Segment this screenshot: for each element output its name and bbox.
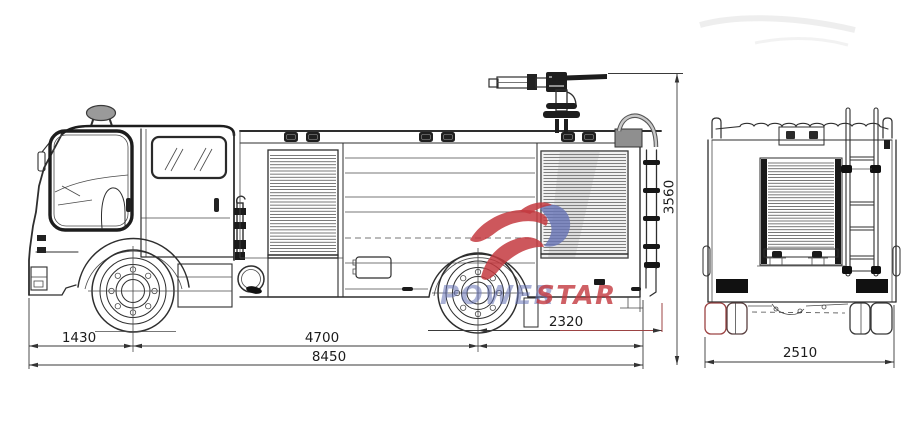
shutter-handle: [772, 251, 782, 258]
rear-axle: [748, 304, 848, 315]
pump-access-door: [353, 257, 391, 278]
beacon-light: [87, 106, 116, 127]
corner-handle-left: [703, 246, 710, 276]
mudflap-right: [856, 279, 888, 293]
watermark-text-star: STAR: [536, 281, 617, 311]
rear-body-outline: [703, 118, 900, 302]
crew-door-window: [152, 137, 226, 178]
headlight: [31, 267, 47, 290]
hose-reel: [238, 266, 264, 295]
cab-hinge: [37, 247, 46, 253]
door-handle: [214, 198, 219, 212]
watermark-logo: [470, 202, 570, 280]
rear-light-box: [779, 127, 824, 145]
dim-text-front-overhang: 1430: [62, 330, 96, 346]
rear-ladder: [841, 108, 881, 276]
door-handle: [126, 198, 131, 212]
water-monitor: [489, 72, 607, 133]
dim-text-overall-height: 3560: [662, 180, 678, 214]
rear-bumper: [620, 297, 643, 312]
rear-top-box: [615, 129, 642, 147]
rear-roller-shutter: [757, 158, 845, 266]
cab-hinge: [37, 235, 46, 241]
scan-smudge: [700, 18, 855, 45]
dim-text-wheelbase: 4700: [305, 330, 339, 346]
dim-text-rear-overhang: 2320: [549, 314, 583, 330]
corner-post-left: [712, 118, 721, 138]
dimension-front-overhang-wheelbase: 1430 4700: [29, 330, 643, 348]
dimension-overall-width: 2510: [705, 305, 894, 368]
shutter-handle: [812, 251, 822, 258]
grab-handle: [402, 287, 413, 291]
grab-handle: [631, 287, 641, 291]
drawing-sheet: 1430 4700 2320 8450 3560: [0, 0, 923, 421]
dimension-overall-length: 8450: [29, 349, 643, 367]
clearance-lights: [284, 132, 596, 142]
mudflap-left: [716, 279, 748, 293]
dimension-overall-height: 3560: [662, 74, 680, 366]
rear-wheels: [705, 303, 892, 334]
dim-text-overall-length: 8450: [312, 349, 346, 365]
rear-view: [703, 108, 900, 334]
front-door-window: [50, 131, 132, 230]
fire-truck-drawing: 1430 4700 2320 8450 3560: [0, 0, 923, 421]
cab-step-box: [178, 264, 232, 307]
dim-text-overall-width: 2510: [783, 345, 817, 361]
roller-shutter-left: [268, 150, 338, 297]
